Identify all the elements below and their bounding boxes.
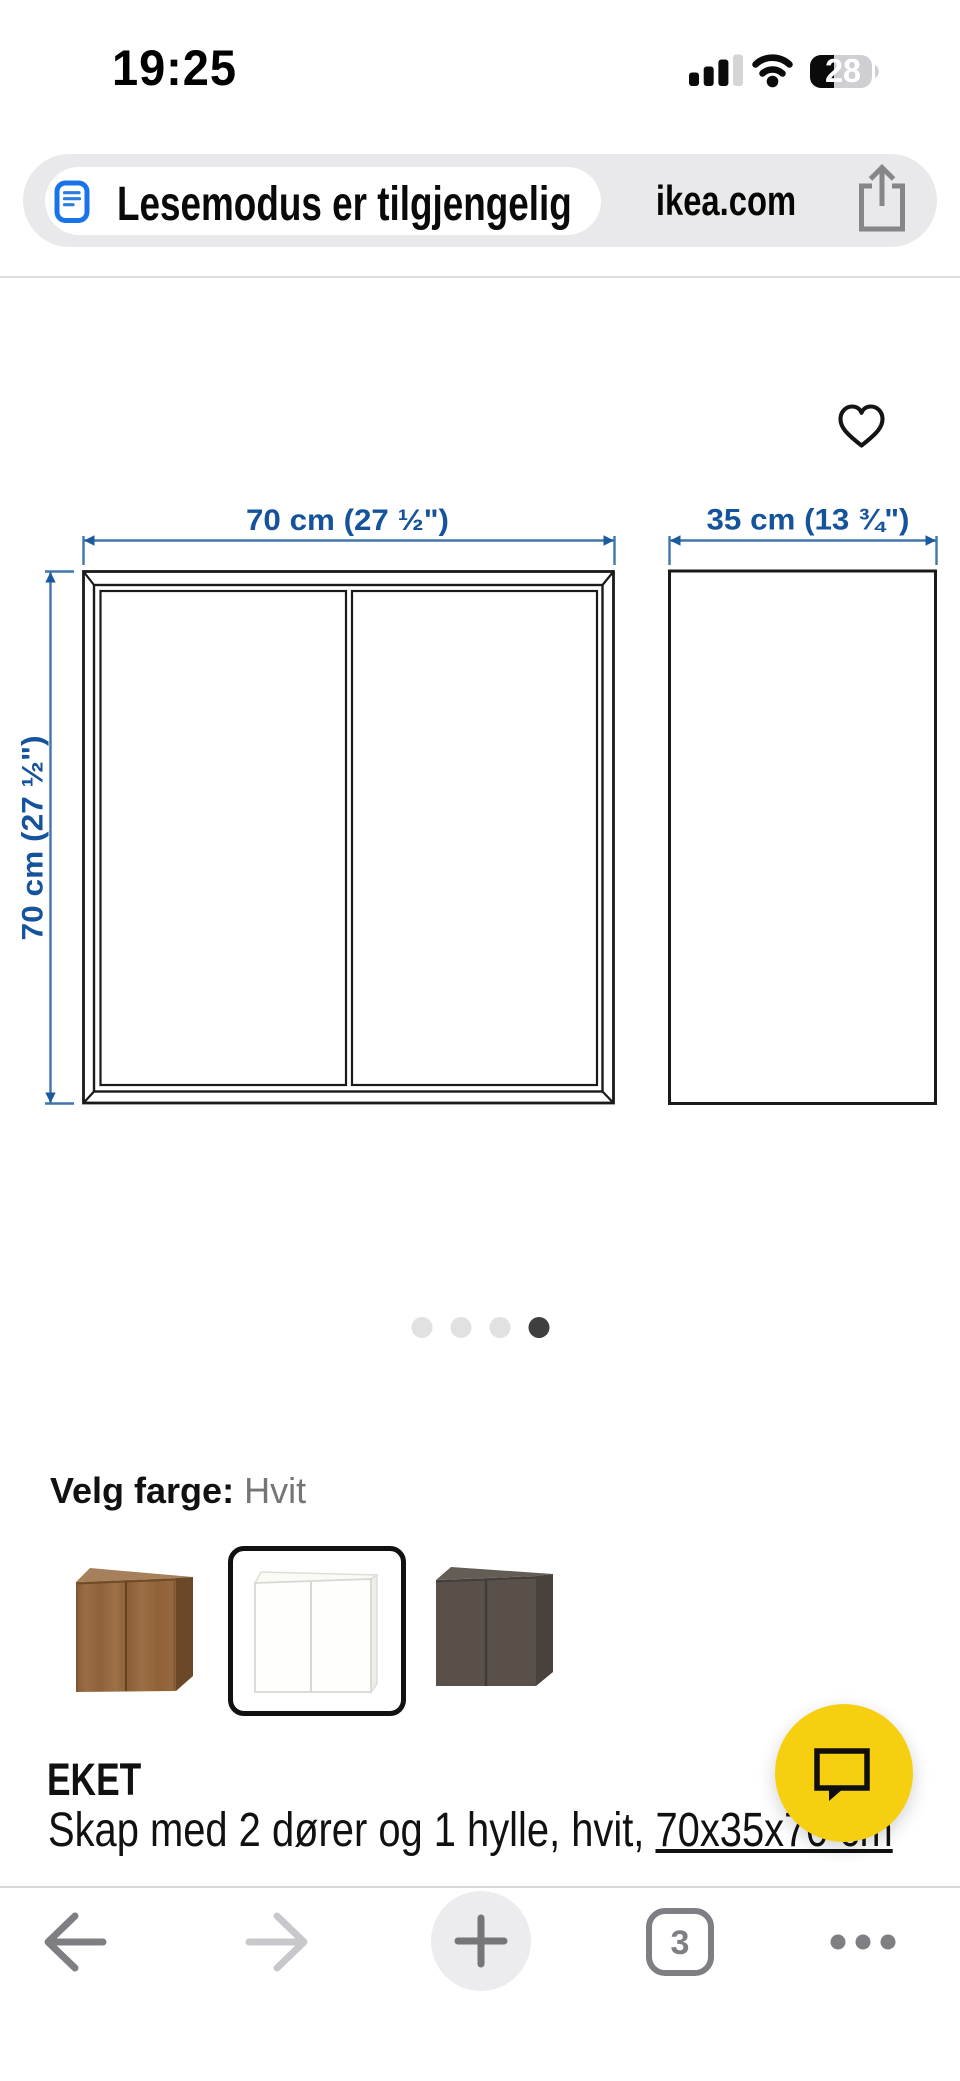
svg-text:28: 28	[825, 52, 861, 89]
svg-text:3: 3	[671, 1924, 690, 1962]
svg-text:35 cm (13 ¾"): 35 cm (13 ¾")	[707, 504, 910, 537]
svg-text:70 cm (27 ½"): 70 cm (27 ½")	[17, 736, 50, 941]
svg-text:70 cm (27 ½"): 70 cm (27 ½")	[246, 504, 449, 537]
